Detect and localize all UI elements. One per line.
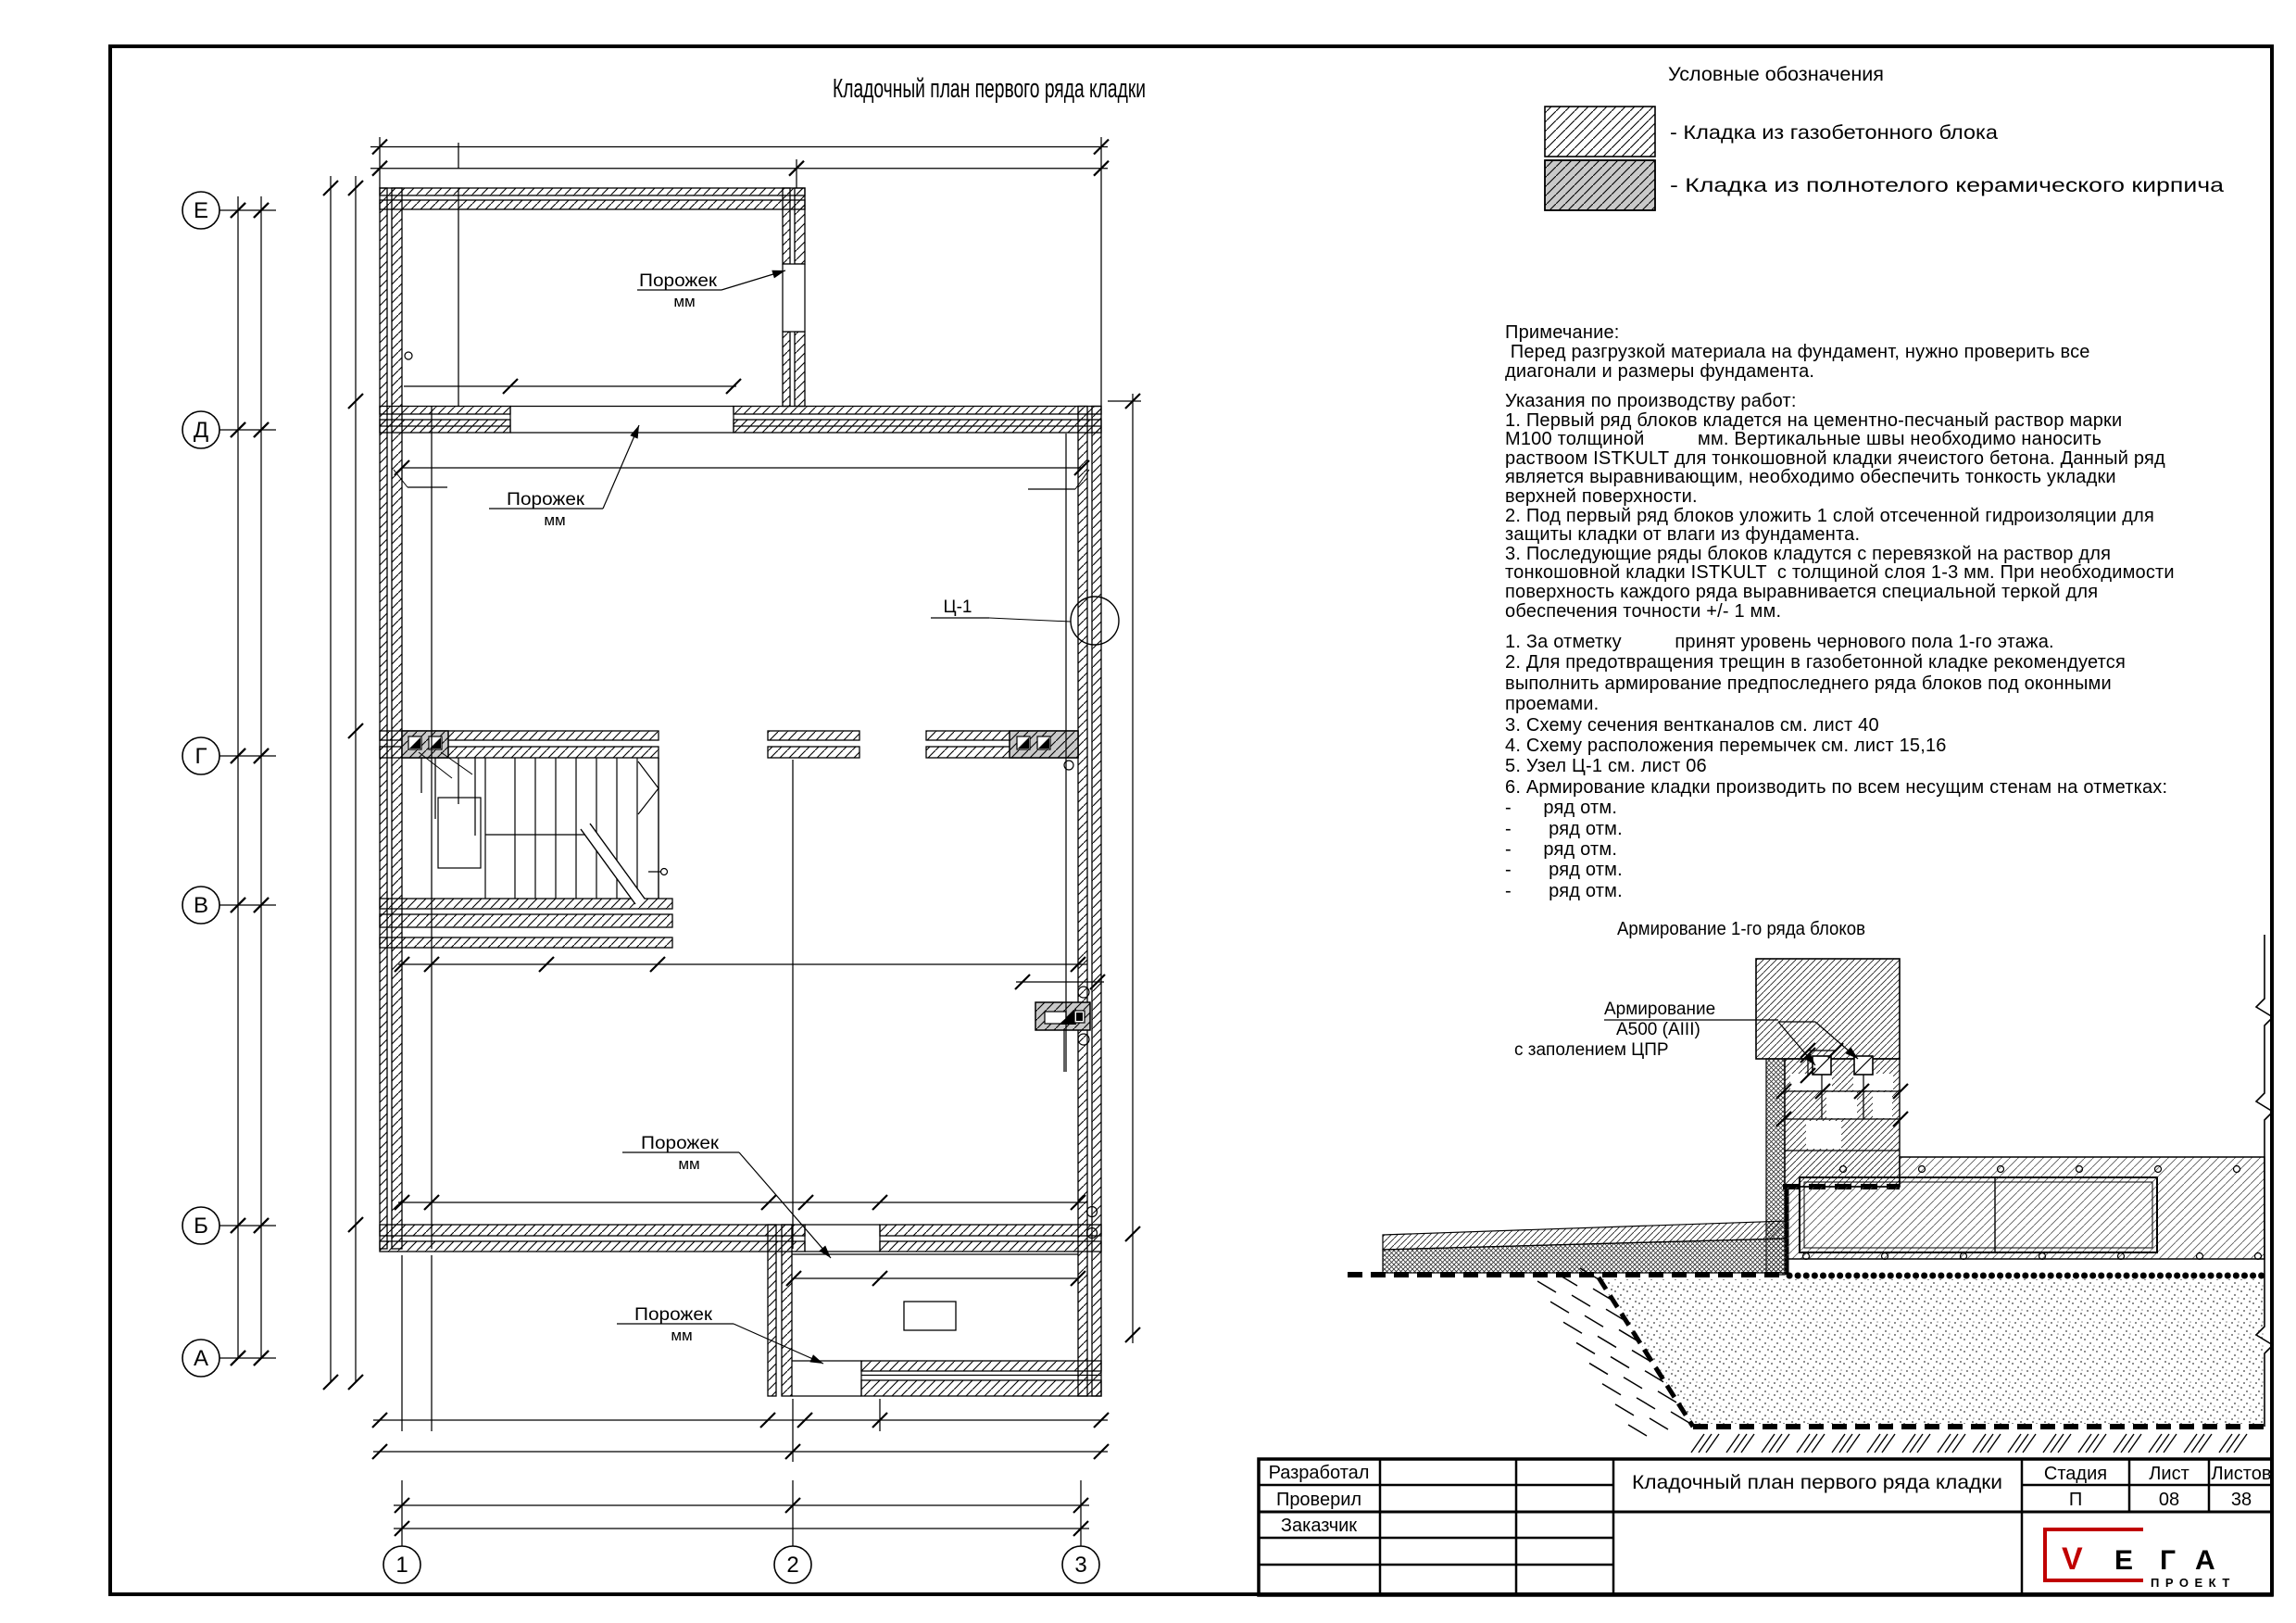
svg-text:08: 08	[2159, 1490, 2179, 1510]
svg-text:Е: Е	[2114, 1545, 2133, 1576]
svg-text:мм: мм	[671, 1327, 692, 1344]
svg-text:Порожек: Порожек	[634, 1305, 713, 1325]
svg-text:мм: мм	[678, 1155, 699, 1173]
svg-text:1: 1	[395, 1553, 408, 1578]
svg-text:А500 (АIII): А500 (АIII)	[1616, 1020, 1700, 1039]
svg-text:- Кладка из полнотелого керами: - Кладка из полнотелого керамического ки…	[1670, 175, 2224, 196]
svg-text:Порожек: Порожек	[507, 490, 585, 510]
svg-text:Стадия: Стадия	[2044, 1464, 2107, 1484]
svg-text:мм: мм	[544, 511, 565, 529]
svg-text:Кладочный план первого ряда кл: Кладочный план первого ряда кладки	[1632, 1472, 2002, 1493]
svg-text:П: П	[2069, 1490, 2082, 1510]
svg-text:В: В	[194, 893, 208, 918]
svg-text:А: А	[2195, 1545, 2215, 1576]
svg-text:с заполением ЦПР: с заполением ЦПР	[1514, 1040, 1669, 1060]
svg-text:Листов: Листов	[2212, 1464, 2272, 1484]
svg-text:Кладочный план первого ряда кл: Кладочный план первого ряда кладки	[833, 74, 1146, 104]
svg-text:Условные обозначения: Условные обозначения	[1668, 64, 1884, 85]
svg-text:Разработал: Разработал	[1269, 1463, 1370, 1483]
svg-text:38: 38	[2231, 1490, 2252, 1510]
svg-text:Б: Б	[194, 1214, 208, 1239]
svg-text:Проверил: Проверил	[1276, 1490, 1361, 1510]
svg-text:Г: Г	[195, 744, 207, 769]
svg-text:Г: Г	[2160, 1545, 2176, 1576]
svg-text:Заказчик: Заказчик	[1281, 1516, 1357, 1536]
svg-text:Е: Е	[194, 198, 208, 223]
svg-text:Армирование: Армирование	[1604, 1000, 1715, 1019]
svg-text:Ц-1: Ц-1	[944, 598, 972, 617]
svg-text:Д: Д	[194, 418, 208, 443]
svg-text:2: 2	[786, 1553, 798, 1578]
svg-text:Порожек: Порожек	[639, 271, 718, 291]
svg-text:Армирование 1-го ряда блоков: Армирование 1-го ряда блоков	[1617, 919, 1865, 939]
svg-text:- Кладка из газобетонного блок: - Кладка из газобетонного блока	[1670, 122, 1998, 144]
svg-text:мм: мм	[673, 293, 695, 310]
svg-text:ПРОЕКТ: ПРОЕКТ	[2151, 1576, 2236, 1590]
svg-text:V: V	[2062, 1541, 2083, 1577]
svg-text:3: 3	[1074, 1553, 1086, 1578]
svg-text:Лист: Лист	[2149, 1464, 2189, 1484]
svg-text:Порожек: Порожек	[641, 1134, 720, 1153]
svg-text:А: А	[194, 1346, 208, 1371]
